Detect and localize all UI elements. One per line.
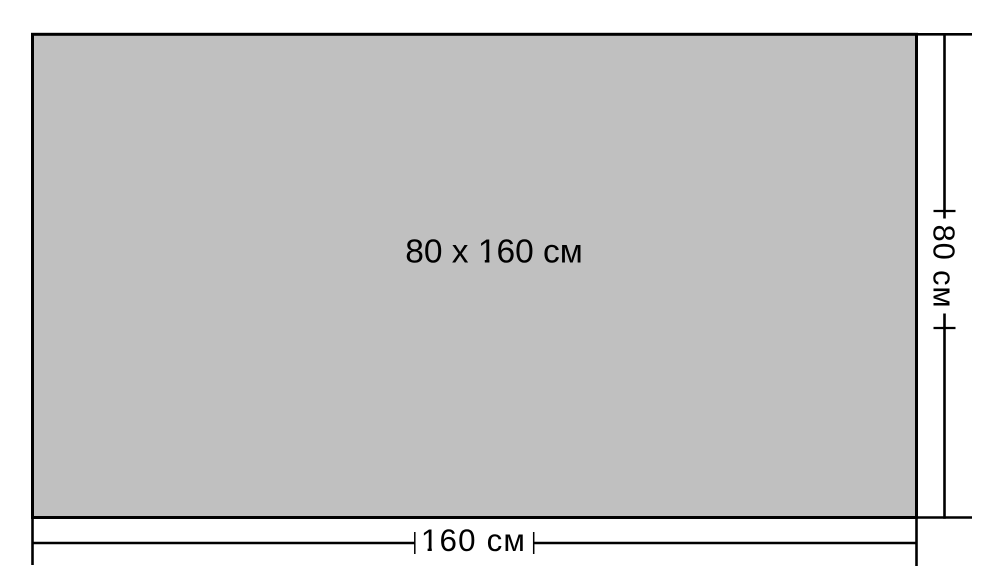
svg-text:160 см: 160 см [421, 523, 526, 558]
svg-text:80 см: 80 см [927, 225, 962, 309]
svg-text:80 x 160 см: 80 x 160 см [405, 234, 583, 271]
